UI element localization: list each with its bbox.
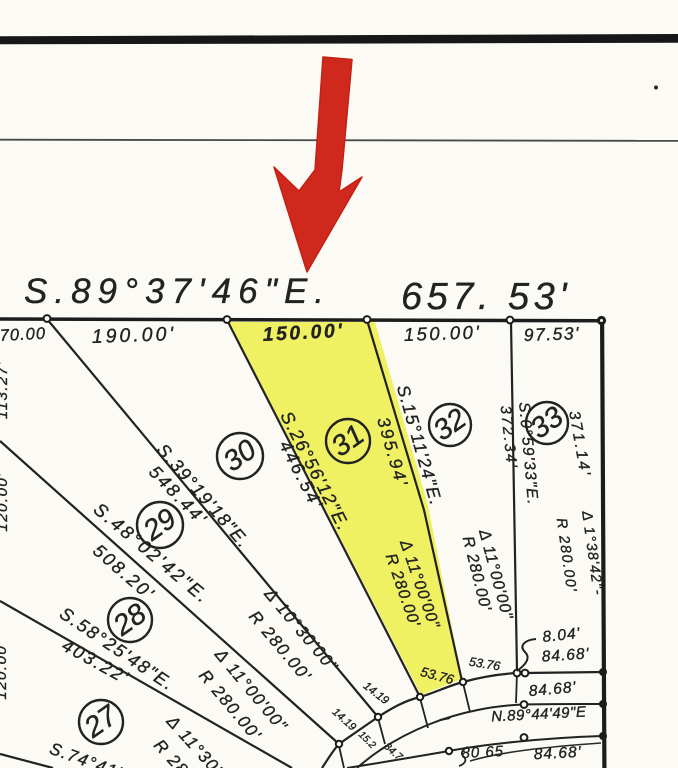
svg-text:84.68': 84.68' bbox=[541, 645, 590, 665]
svg-text:S.89°37'46"E.: S.89°37'46"E. bbox=[24, 272, 331, 311]
svg-text:150.00': 150.00' bbox=[403, 321, 481, 345]
svg-text:150.00': 150.00' bbox=[262, 320, 345, 346]
svg-text:120.00': 120.00' bbox=[0, 472, 11, 531]
svg-text:120.00': 120.00' bbox=[0, 640, 10, 699]
svg-text:84.68': 84.68' bbox=[533, 744, 582, 763]
svg-text:657. 53': 657. 53' bbox=[401, 276, 571, 318]
svg-text:70.00: 70.00 bbox=[0, 325, 46, 345]
svg-text:80 65: 80 65 bbox=[461, 743, 504, 762]
svg-text:113.27': 113.27' bbox=[0, 361, 11, 419]
svg-text:190.00': 190.00' bbox=[91, 323, 176, 348]
svg-text:97.53': 97.53' bbox=[523, 323, 580, 345]
